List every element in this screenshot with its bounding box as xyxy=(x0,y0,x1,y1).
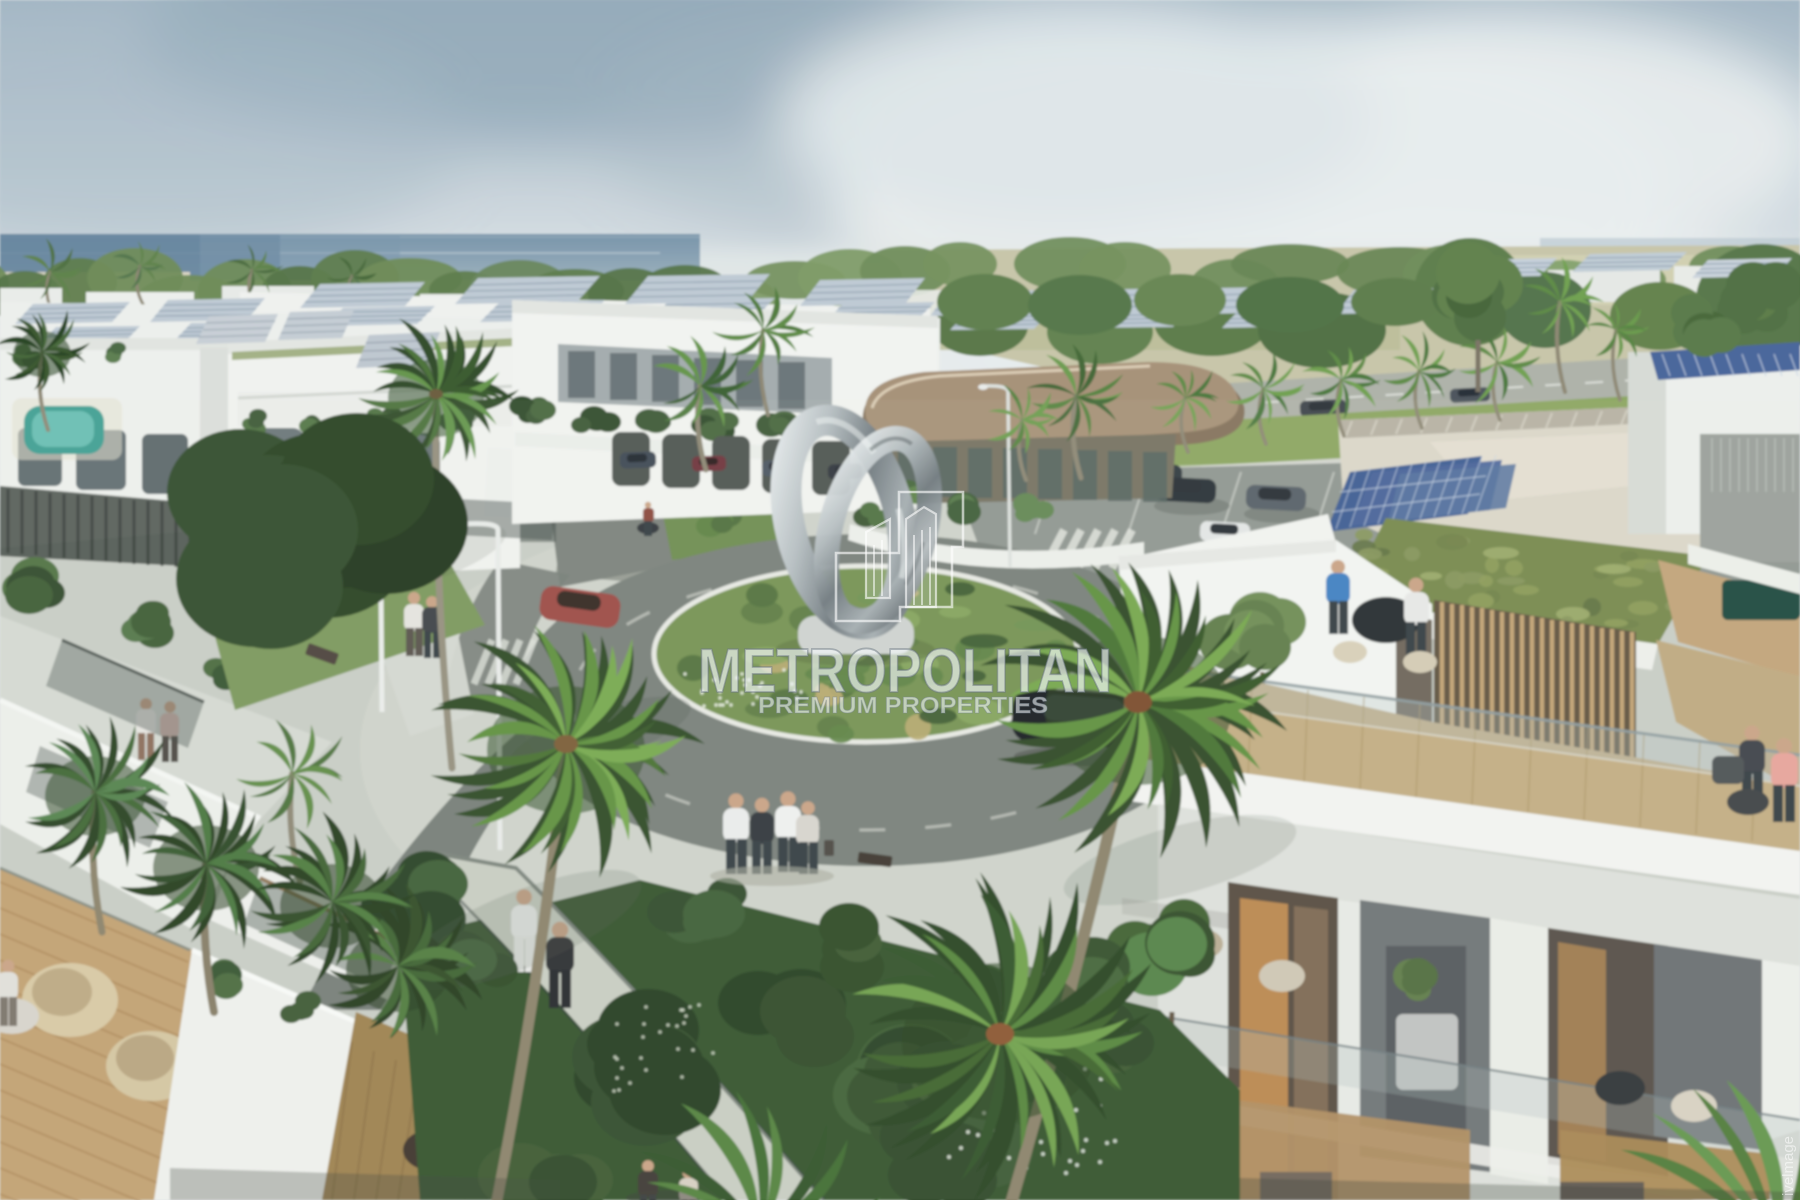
svg-text:PREMIUM PROPERTIES: PREMIUM PROPERTIES xyxy=(758,692,1048,718)
svg-text:ivelmage: ivelmage xyxy=(1780,1136,1797,1196)
